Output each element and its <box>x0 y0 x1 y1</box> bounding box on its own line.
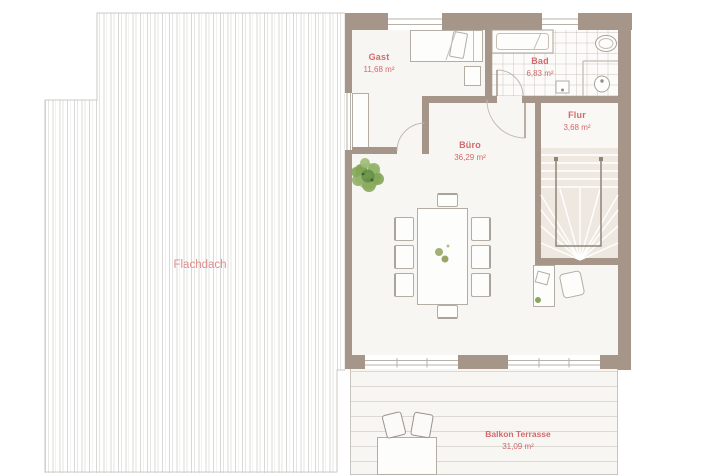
room-name-bad: Bad <box>510 56 570 67</box>
balcony-table <box>377 437 437 475</box>
room-area-balkon: 31,09 m² <box>483 442 553 452</box>
chair <box>394 245 414 269</box>
wall-segment <box>535 96 541 265</box>
nightstand <box>464 66 481 86</box>
chair <box>437 193 458 207</box>
flachdach-label: Flachdach <box>145 259 255 273</box>
wall-segment <box>535 258 618 265</box>
wardrobe <box>352 93 369 150</box>
room-name-balkon: Balkon Terrasse <box>453 429 583 439</box>
chair <box>471 217 491 241</box>
wall-segment <box>600 355 631 369</box>
window <box>345 93 352 150</box>
chair <box>394 217 414 241</box>
room-name-flur: Flur <box>547 110 607 121</box>
wall-segment <box>618 13 631 370</box>
wall-segment <box>352 147 397 154</box>
wall-segment <box>442 13 542 30</box>
wall-segment <box>345 355 365 369</box>
room-area-bad: 6,83 m² <box>506 69 574 79</box>
room-area-gast: 11,68 m² <box>342 65 416 75</box>
room-area-buero: 36,29 m² <box>433 153 507 163</box>
balcony-chair <box>410 411 434 438</box>
wall-segment <box>345 150 352 369</box>
chair <box>437 305 458 319</box>
stairwell-floor <box>541 148 618 258</box>
window <box>508 355 600 369</box>
wall-segment <box>422 96 497 103</box>
room-area-flur: 3,68 m² <box>543 123 611 133</box>
room-name-buero: Büro <box>440 140 500 151</box>
flachdach-roof-area <box>45 13 345 473</box>
wall-segment <box>422 96 429 154</box>
chair <box>471 273 491 297</box>
room-name-gast: Gast <box>349 52 409 63</box>
dining-table <box>417 208 468 305</box>
window <box>388 13 442 30</box>
chair <box>471 245 491 269</box>
wall-segment <box>458 355 508 369</box>
window <box>542 13 578 30</box>
floor-plan: Flachdach Gast 11,68 m² Bad 6,83 m² Flur… <box>0 0 715 475</box>
window <box>365 355 458 369</box>
bed-headboard-line <box>473 31 474 61</box>
wall-segment <box>485 13 492 96</box>
chair <box>394 273 414 297</box>
